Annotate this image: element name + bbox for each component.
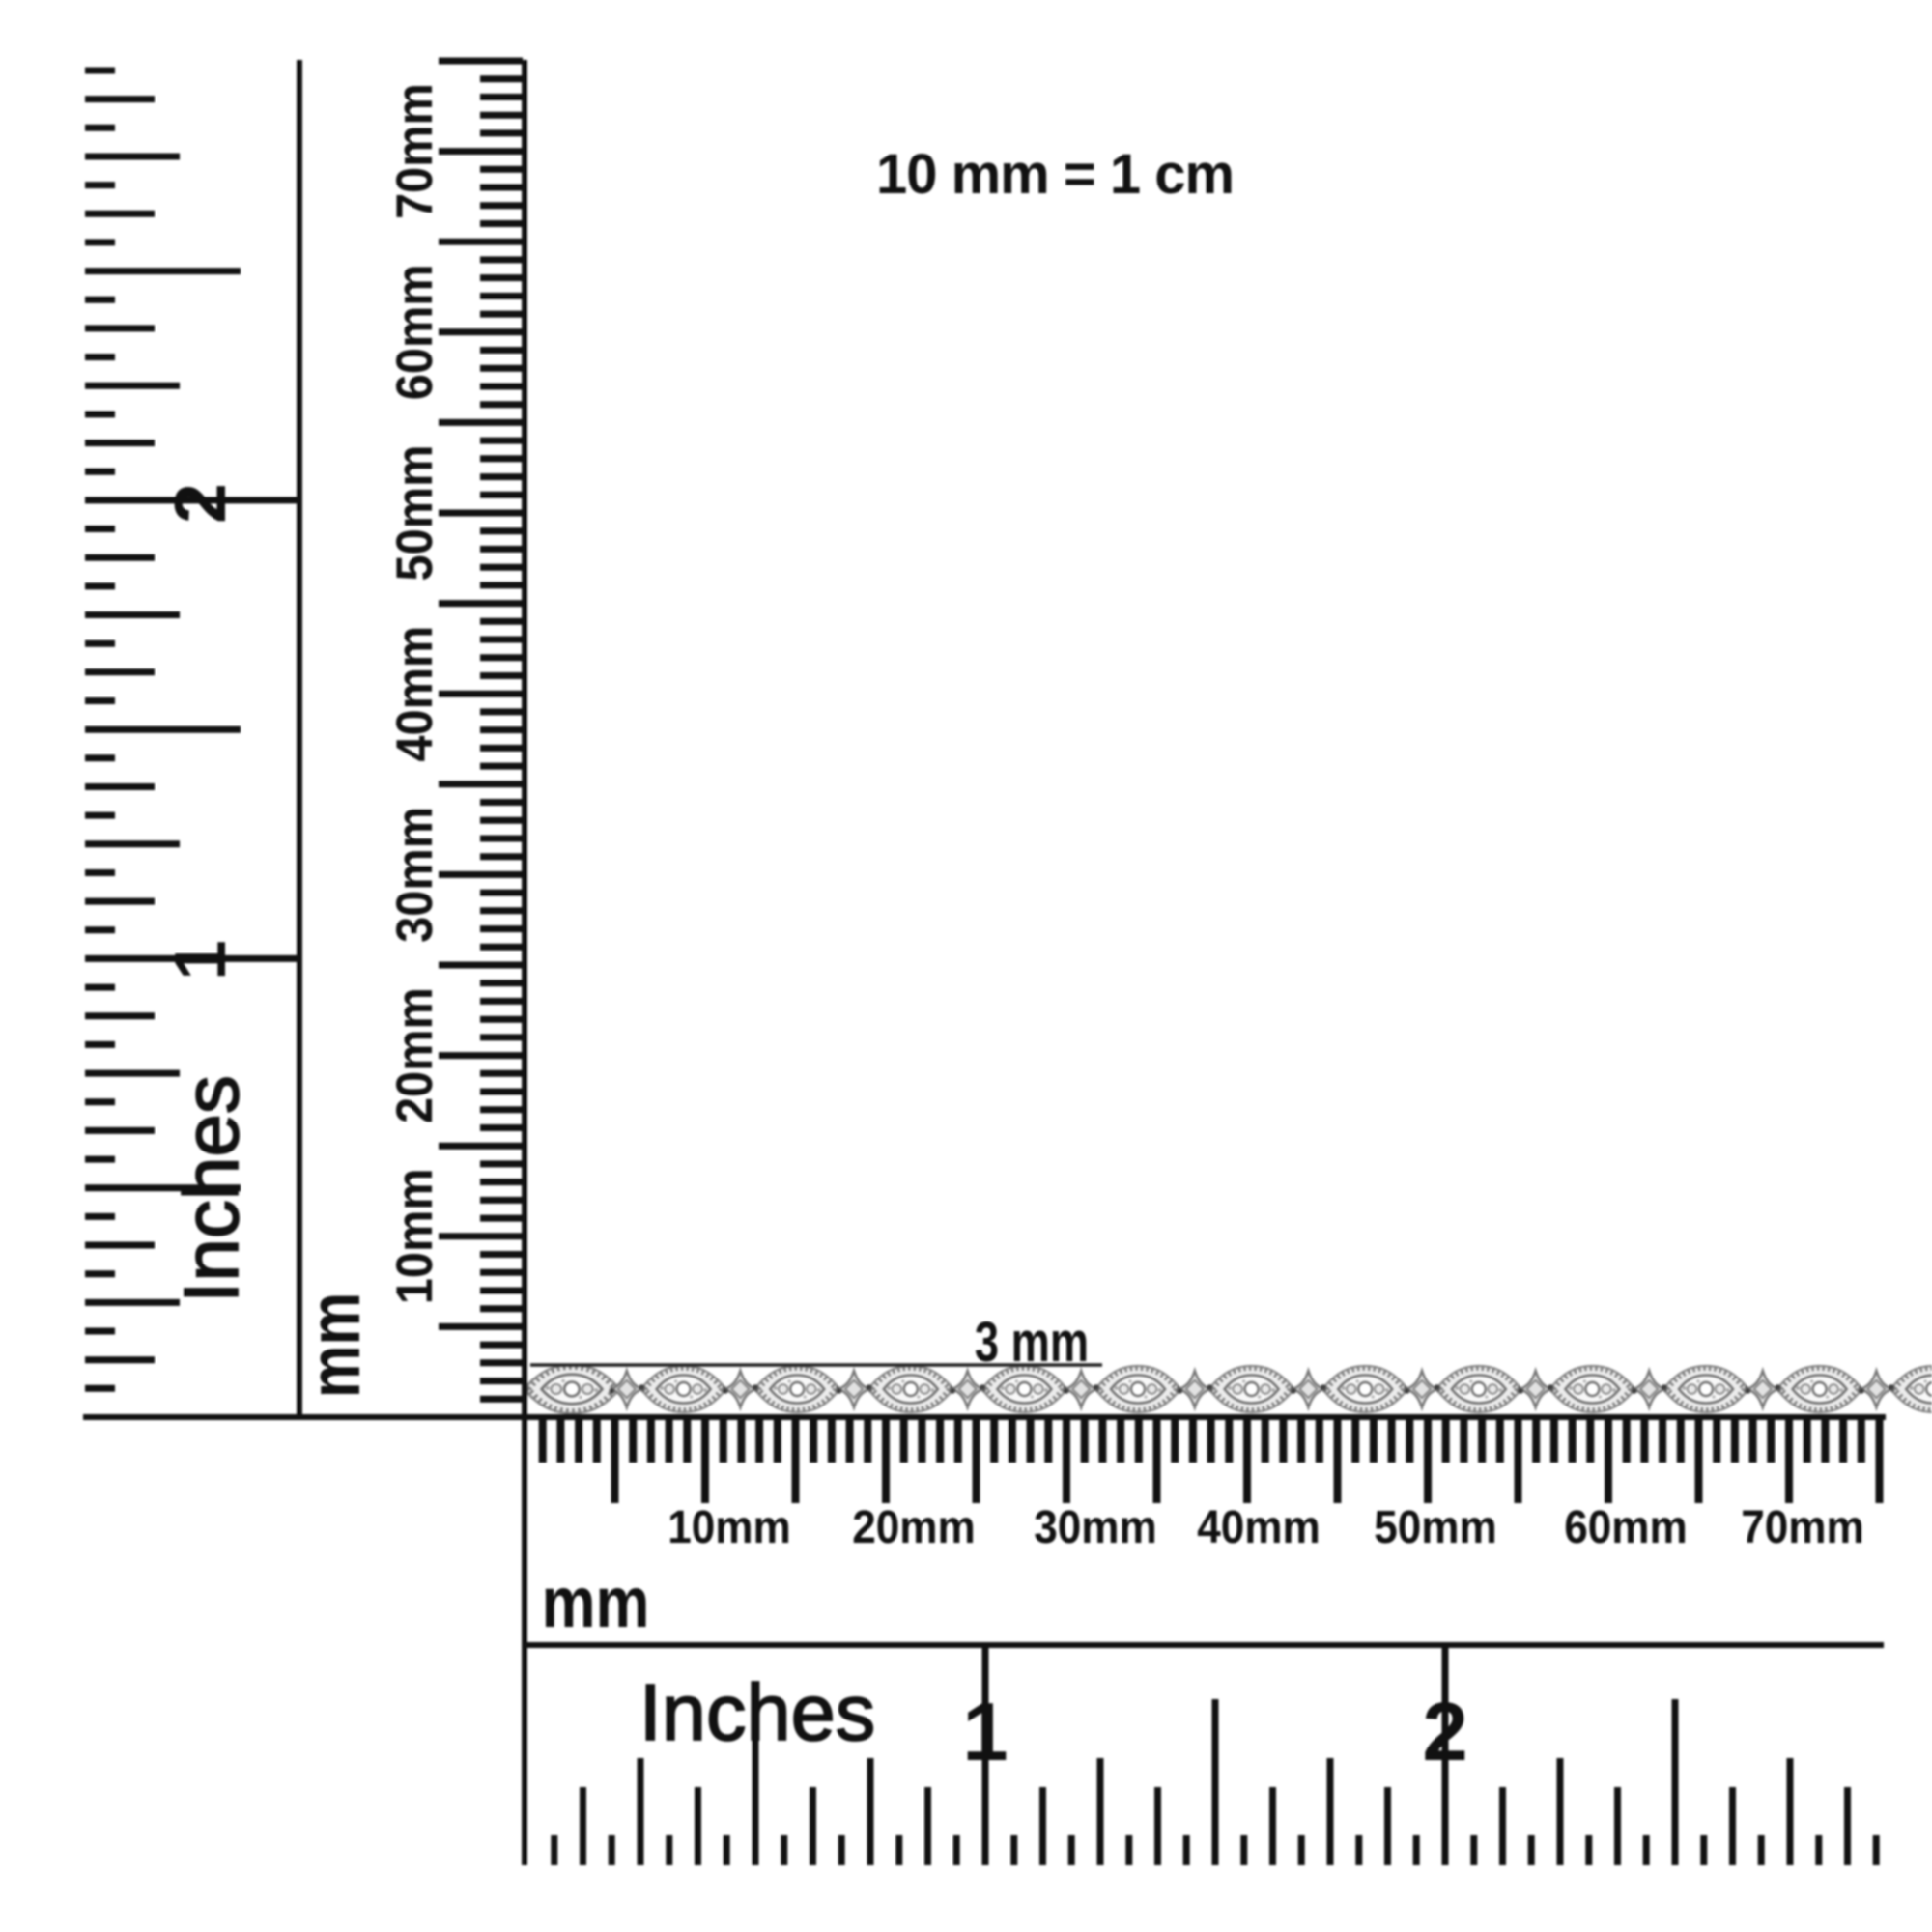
svg-text:50mm: 50mm [385,445,442,582]
svg-text:60mm: 60mm [1564,1500,1688,1552]
svg-text:40mm: 40mm [1197,1500,1321,1552]
svg-text:50mm: 50mm [1374,1500,1497,1552]
svg-text:40mm: 40mm [385,626,442,762]
svg-text:10mm: 10mm [385,1168,442,1304]
svg-text:Inches: Inches [168,1075,254,1303]
svg-text:70mm: 70mm [1741,1500,1864,1552]
svg-text:10 mm = 1 cm: 10 mm = 1 cm [876,143,1234,206]
svg-text:2: 2 [1422,1687,1467,1778]
svg-text:1: 1 [962,1687,1008,1778]
svg-text:20mm: 20mm [385,987,442,1123]
svg-text:mm: mm [294,1293,375,1398]
svg-text:20mm: 20mm [852,1500,976,1552]
svg-text:Inches: Inches [639,1667,876,1757]
svg-text:mm: mm [542,1562,650,1642]
svg-text:1: 1 [159,940,241,980]
svg-text:2: 2 [159,483,241,524]
svg-text:60mm: 60mm [385,264,442,400]
svg-text:30mm: 30mm [385,807,442,943]
svg-text:70mm: 70mm [385,83,442,219]
svg-text:10mm: 10mm [668,1500,791,1552]
svg-text:30mm: 30mm [1034,1500,1157,1552]
